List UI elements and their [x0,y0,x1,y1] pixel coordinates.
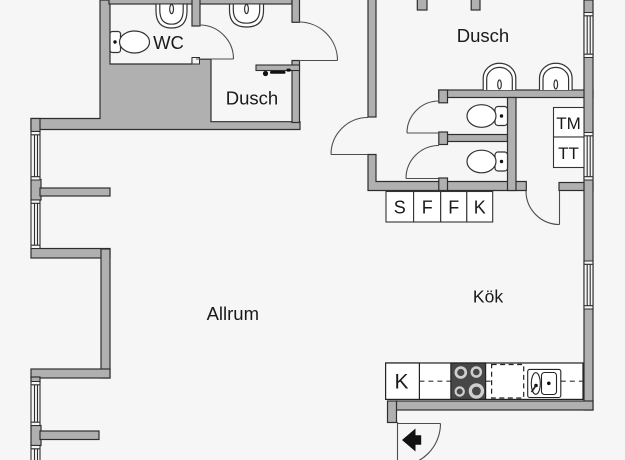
svg-text:S: S [394,198,406,218]
svg-text:WC: WC [153,32,184,53]
svg-text:F: F [422,198,433,218]
svg-text:TT: TT [558,144,579,163]
svg-text:TM: TM [556,114,581,133]
svg-text:K: K [474,198,486,218]
svg-text:F: F [448,198,459,218]
svg-text:Kök: Kök [473,287,503,307]
svg-text:Dusch: Dusch [226,88,278,109]
svg-text:Dusch: Dusch [457,25,509,46]
svg-text:K: K [394,371,408,394]
svg-text:Allrum: Allrum [207,303,259,324]
